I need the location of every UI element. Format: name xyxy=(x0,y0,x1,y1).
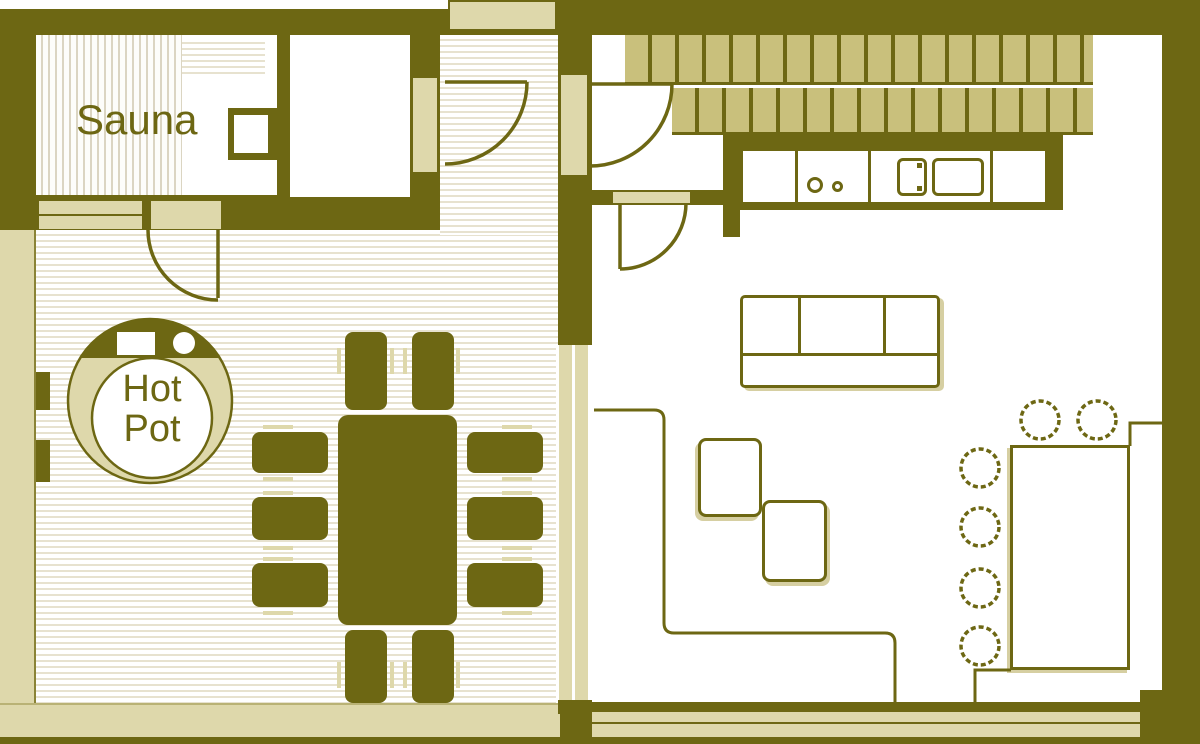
hot-pot-label-line2: Pot xyxy=(123,408,180,450)
door-living-top xyxy=(590,84,672,166)
plan-overlay: Hot Pot xyxy=(0,0,1200,744)
hot-pot-valve-icon xyxy=(173,332,195,354)
bar-stools xyxy=(961,401,1116,665)
hot-pot-wall-step xyxy=(36,372,50,410)
bar-stool-icon xyxy=(961,449,999,487)
bar-table-step-bottom xyxy=(975,670,1011,703)
bar-stool-icon xyxy=(961,508,999,546)
door-corridor xyxy=(445,82,527,164)
hot-pot-tub: Hot Pot xyxy=(36,319,232,483)
hot-pot-wall-step xyxy=(36,440,50,482)
hot-pot-label-line1: Hot xyxy=(122,368,182,410)
bar-table-step-top xyxy=(1130,423,1165,446)
door-sauna xyxy=(148,230,218,300)
bar-stool-icon xyxy=(1078,401,1116,439)
hot-pot-control-box-icon xyxy=(117,332,155,355)
bar-stool-icon xyxy=(1021,401,1059,439)
floor-plan: Sauna xyxy=(0,0,1200,744)
bar-stool-icon xyxy=(961,627,999,665)
door-hall xyxy=(620,203,686,269)
bar-stool-icon xyxy=(961,569,999,607)
corner-bench-outline xyxy=(594,410,895,702)
